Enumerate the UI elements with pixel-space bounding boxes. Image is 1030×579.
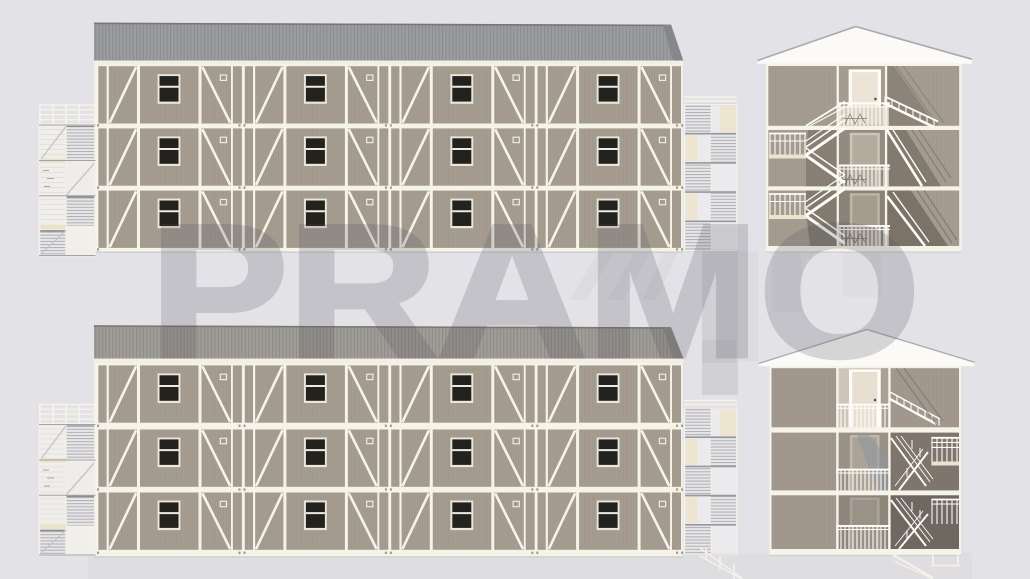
svg-text:PRAMO: PRAMO xyxy=(150,186,920,396)
